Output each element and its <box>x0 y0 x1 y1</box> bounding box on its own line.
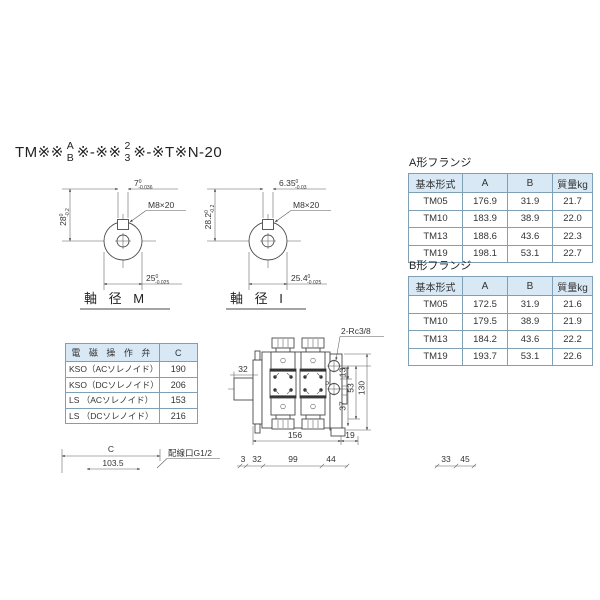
dim-port-offset: 13 <box>338 368 348 378</box>
table-row: LS （ACソレノイド） 153 <box>66 393 198 409</box>
flange-b-section: B形フランジ 基本形式 A B 質量kg TM05 172.5 31.9 21.… <box>408 257 593 366</box>
flange-a-table: 基本形式 A B 質量kg TM05 176.9 31.9 21.7 TM10 … <box>408 173 593 263</box>
table-cell: 184.2 <box>463 331 508 349</box>
table-row: KSO（ACソレノイド） 190 <box>66 362 198 378</box>
catalog-page: 70-0.036 280-0.2 M8×20 250-0.025 軸 径 M <box>0 0 600 600</box>
col-header: B <box>508 174 553 193</box>
table-cell: 53.1 <box>508 348 553 366</box>
table-cell: TM13 <box>409 331 463 349</box>
dim-shaft-length: 32 <box>238 364 248 374</box>
table-header-row: 電 磁 操 作 弁 C <box>66 344 198 362</box>
table-row: TM10 179.5 38.9 21.9 <box>409 313 593 331</box>
table-row: TM13 184.2 43.6 22.2 <box>409 331 593 349</box>
bottom-chain-dimensions: 3 32 99 44 <box>237 454 349 468</box>
table-cell: 193.7 <box>463 348 508 366</box>
table-cell: 21.7 <box>553 193 593 211</box>
table-cell: 216 <box>159 408 197 424</box>
col-header: A <box>463 174 508 193</box>
c-dimension-group: C 103.5 配線口G1/2 <box>62 444 220 473</box>
dim-height-i: 28.20-0.2 <box>203 204 216 229</box>
col-header: 質量kg <box>553 277 593 296</box>
table-cell: 43.6 <box>508 228 553 246</box>
col-header: C <box>159 344 197 362</box>
table-header-row: 基本形式 A B 質量kg <box>409 174 593 193</box>
dim-c-ref: C <box>108 444 114 454</box>
table-cell: TM10 <box>409 313 463 331</box>
side-dim: 33 <box>441 454 451 464</box>
table-cell: LS （DCソレノイド） <box>66 408 160 424</box>
table-row: TM19 193.7 53.1 22.6 <box>409 348 593 366</box>
table-cell: 183.9 <box>463 210 508 228</box>
table-cell: 179.5 <box>463 313 508 331</box>
shaft-m-diagram: 70-0.036 280-0.2 M8×20 250-0.025 軸 径 M <box>58 178 186 309</box>
table-cell: 21.9 <box>553 313 593 331</box>
model-option-3: 3 <box>125 152 131 164</box>
flange-a-title: A形フランジ <box>409 154 593 170</box>
dim-end: 19 <box>345 430 355 440</box>
table-cell: TM13 <box>409 228 463 246</box>
shaft-i-diagram: 6.350-0.03 28.20-0.2 M8×20 25.40-0.025 軸… <box>203 178 331 309</box>
model-option-ab: AB <box>67 140 74 164</box>
side-dim: 45 <box>460 454 470 464</box>
model-number-title: TM※※AB※-※※23※-※T※N-20 <box>15 140 222 164</box>
dim-c-value: 103.5 <box>102 458 124 468</box>
chain-dim: 99 <box>288 454 298 464</box>
thread-label-i: M8×20 <box>293 200 319 210</box>
table-row: LS （DCソレノイド） 216 <box>66 408 198 424</box>
model-option-23: 23 <box>125 140 131 164</box>
table-cell: 206 <box>159 377 197 393</box>
col-header: 基本形式 <box>409 174 463 193</box>
table-cell: 22.2 <box>553 331 593 349</box>
table-row: TM05 176.9 31.9 21.7 <box>409 193 593 211</box>
chain-dim: 3 <box>241 454 246 464</box>
table-cell: 172.5 <box>463 296 508 314</box>
table-row: TM05 172.5 31.9 21.6 <box>409 296 593 314</box>
col-header: A <box>463 277 508 296</box>
table-cell: KSO（DCソレノイド） <box>66 377 160 393</box>
valve-station-2 <box>300 338 326 429</box>
dim-body-length: 156 <box>288 430 302 440</box>
table-header-row: 基本形式 A B 質量kg <box>409 277 593 296</box>
solenoid-table: 電 磁 操 作 弁 C KSO（ACソレノイド） 190 KSO（DCソレノイド… <box>65 343 198 424</box>
side-chain-dimensions: 33 45 <box>435 454 476 468</box>
table-cell: TM10 <box>409 210 463 228</box>
table-cell: 31.9 <box>508 193 553 211</box>
table-cell: LS （ACソレノイド） <box>66 393 160 409</box>
col-header: 基本形式 <box>409 277 463 296</box>
table-row: KSO（DCソレノイド） 206 <box>66 377 198 393</box>
model-suffix: ※-※T※N-20 <box>133 143 222 161</box>
col-header: 質量kg <box>553 174 593 193</box>
valve-station-1 <box>270 338 296 429</box>
chain-dim: 32 <box>252 454 262 464</box>
dim-height-m: 280-0.2 <box>58 208 71 226</box>
flange-b-title: B形フランジ <box>409 257 593 273</box>
model-option-b: B <box>67 152 74 164</box>
solenoid-table-section: 電 磁 操 作 弁 C KSO（ACソレノイド） 190 KSO（DCソレノイド… <box>65 343 198 424</box>
table-cell: 153 <box>159 393 197 409</box>
table-cell: 22.3 <box>553 228 593 246</box>
col-header: 電 磁 操 作 弁 <box>66 344 160 362</box>
table-cell: 43.6 <box>508 331 553 349</box>
flange-b-table: 基本形式 A B 質量kg TM05 172.5 31.9 21.6 TM10 … <box>408 276 593 366</box>
dim-port-height: 53 <box>346 383 356 393</box>
table-row: TM13 188.6 43.6 22.3 <box>409 228 593 246</box>
thread-label-m: M8×20 <box>148 200 174 210</box>
table-cell: TM19 <box>409 348 463 366</box>
dim-total-height: 130 <box>357 381 367 395</box>
table-cell: 190 <box>159 362 197 378</box>
table-cell: KSO（ACソレノイド） <box>66 362 160 378</box>
shaft-m-label: 軸 径 M <box>84 291 148 306</box>
table-cell: 31.9 <box>508 296 553 314</box>
table-cell: TM05 <box>409 193 463 211</box>
table-cell: 21.6 <box>553 296 593 314</box>
table-cell: 38.9 <box>508 210 553 228</box>
model-option-a: A <box>67 140 74 152</box>
chain-dim: 44 <box>326 454 336 464</box>
valve-assembly-drawing: 32 <box>228 326 384 445</box>
shaft-i-label: 軸 径 I <box>230 291 287 306</box>
table-row: TM10 183.9 38.9 22.0 <box>409 210 593 228</box>
dim-lower: 37 <box>338 401 348 411</box>
table-cell: 38.9 <box>508 313 553 331</box>
table-cell: TM05 <box>409 296 463 314</box>
table-cell: 22.0 <box>553 210 593 228</box>
port-callout-label: 2-Rc3/8 <box>341 326 371 336</box>
table-cell: 22.6 <box>553 348 593 366</box>
model-option-2: 2 <box>125 140 131 152</box>
table-cell: 176.9 <box>463 193 508 211</box>
model-prefix: TM※※ <box>15 143 64 161</box>
wiring-port-label: 配線口G1/2 <box>168 448 212 458</box>
flange-a-section: A形フランジ 基本形式 A B 質量kg TM05 176.9 31.9 21.… <box>408 154 593 263</box>
port-p-label: P <box>325 381 329 388</box>
model-mid: ※-※※ <box>77 143 122 161</box>
col-header: B <box>508 277 553 296</box>
table-cell: 188.6 <box>463 228 508 246</box>
